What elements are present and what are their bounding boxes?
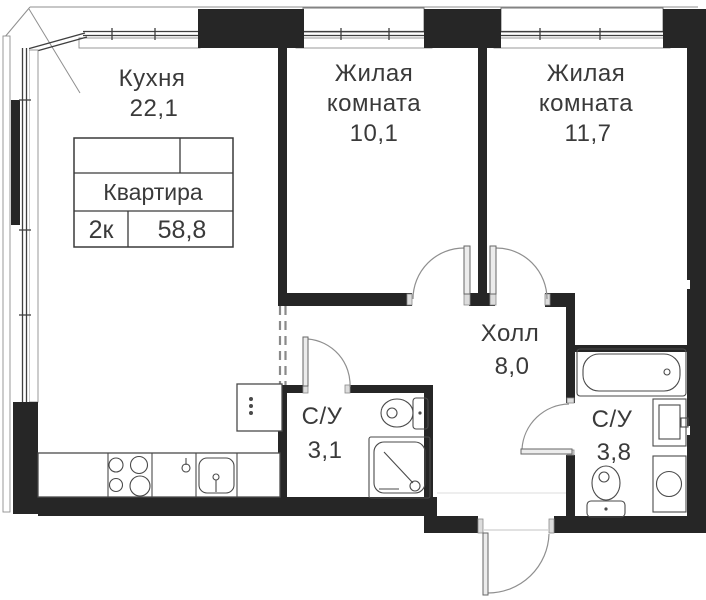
title-block: Квартира 2к 58,8: [74, 138, 233, 247]
wall-living1-hall: [278, 293, 412, 306]
wall-bath-big-west-upper: [566, 345, 575, 403]
title-block-rooms-count: 2к: [89, 216, 115, 244]
label-living2-name-1: Жилая: [547, 60, 625, 87]
window-living2: [494, 8, 670, 48]
wall-kitchen-living1: [278, 48, 287, 306]
window-living1: [296, 8, 432, 48]
label-living1-area: 10,1: [350, 120, 399, 147]
floorplan-svg: Кухня 22,1 Жилая комната 10,1 Жилая комн…: [0, 0, 706, 600]
kitchen-counter: [38, 453, 280, 497]
wall-left-lower: [13, 402, 38, 514]
wall-top-pier-1: [198, 9, 304, 48]
label-living1-name-1: Жилая: [335, 60, 413, 87]
wall-bottom-hall-left: [433, 516, 478, 533]
label-living2-area: 11,7: [565, 120, 612, 147]
window-kitchen-top: [79, 28, 200, 48]
kitchen-appliance-icon: [237, 384, 282, 431]
wall-bath-small-north-right: [350, 385, 433, 393]
title-block-label: Квартира: [103, 179, 203, 205]
floorplan-stage: Кухня 22,1 Жилая комната 10,1 Жилая комн…: [0, 0, 706, 600]
label-living2-name-2: комната: [539, 90, 633, 117]
label-bath-big-name: С/У: [592, 406, 633, 433]
wall-right: [687, 9, 706, 533]
label-bath-small-name: С/У: [302, 403, 343, 430]
label-kitchen-area: 22,1: [130, 95, 179, 122]
wall-right-notch-1: [686, 280, 690, 289]
label-kitchen-name: Кухня: [119, 65, 186, 92]
wall-living2-notch: [566, 293, 575, 352]
wall-top-pier-2: [424, 9, 501, 48]
label-bath-big-area: 3,8: [597, 439, 632, 466]
window-kitchen-left: [19, 48, 38, 402]
label-hall-area: 8,0: [495, 353, 530, 380]
label-hall-name: Холл: [481, 320, 540, 347]
wall-bottom-hall-right: [554, 516, 700, 533]
wall-bath-big-west-lower: [566, 455, 575, 533]
title-block-total-area: 58,8: [158, 216, 207, 244]
label-bath-small-area: 3,1: [308, 437, 343, 464]
wall-bottom-left: [38, 497, 437, 516]
label-living1-name-2: комната: [327, 90, 421, 117]
wall-living1-living2: [478, 48, 487, 306]
